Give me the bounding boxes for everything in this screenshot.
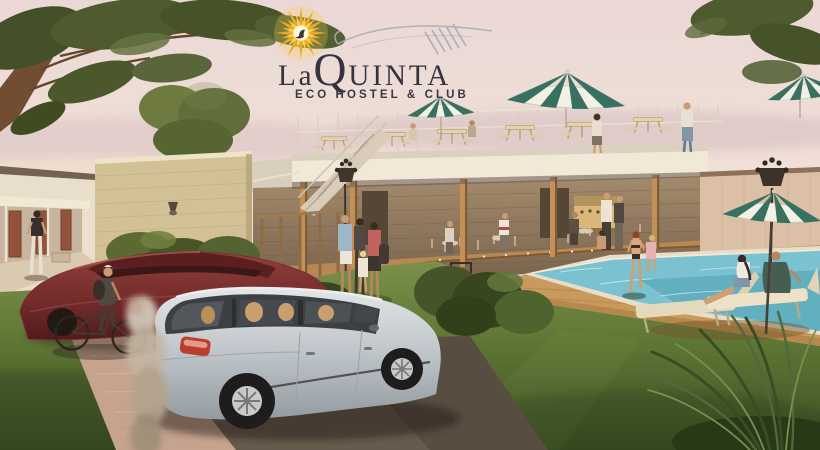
brand-logo: LaQUINTA ECO HOSTEL & CLUB (270, 8, 500, 108)
brand-wordmark: LaQUINTA (278, 52, 451, 91)
brand-text-la: La (278, 61, 315, 91)
brand-text-uinta: UINTA (348, 61, 451, 91)
brand-tagline: ECO HOSTEL & CLUB (280, 89, 484, 101)
brand-text-q: Q (314, 52, 350, 90)
scene-architectural-rendering: LaQUINTA ECO HOSTEL & CLUB (0, 0, 820, 450)
